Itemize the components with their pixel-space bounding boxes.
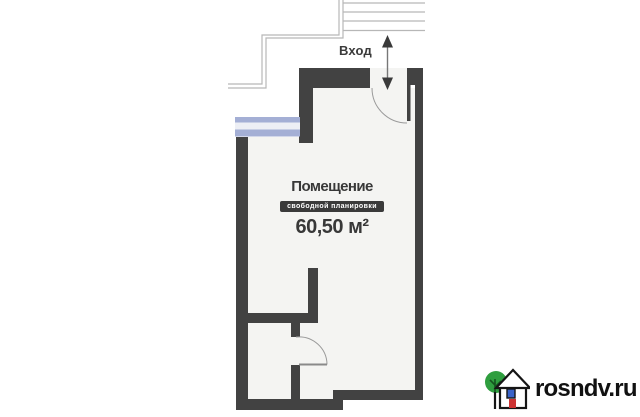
room-title: Помещение — [262, 178, 402, 195]
room-area: 60,50 м² — [262, 216, 402, 239]
entrance-label: Вход — [339, 43, 372, 58]
rosndv-logo-icon — [482, 366, 530, 412]
watermark: rosndv.ru — [479, 363, 637, 415]
floor-plan: Вход Помещение свободной планировки 60,5… — [0, 0, 640, 417]
watermark-site: rosndv.ru — [535, 375, 637, 403]
room-info: Помещение свободной планировки 60,50 м² — [262, 178, 402, 239]
window-band — [235, 117, 300, 137]
room-layout-badge: свободной планировки — [280, 201, 384, 212]
